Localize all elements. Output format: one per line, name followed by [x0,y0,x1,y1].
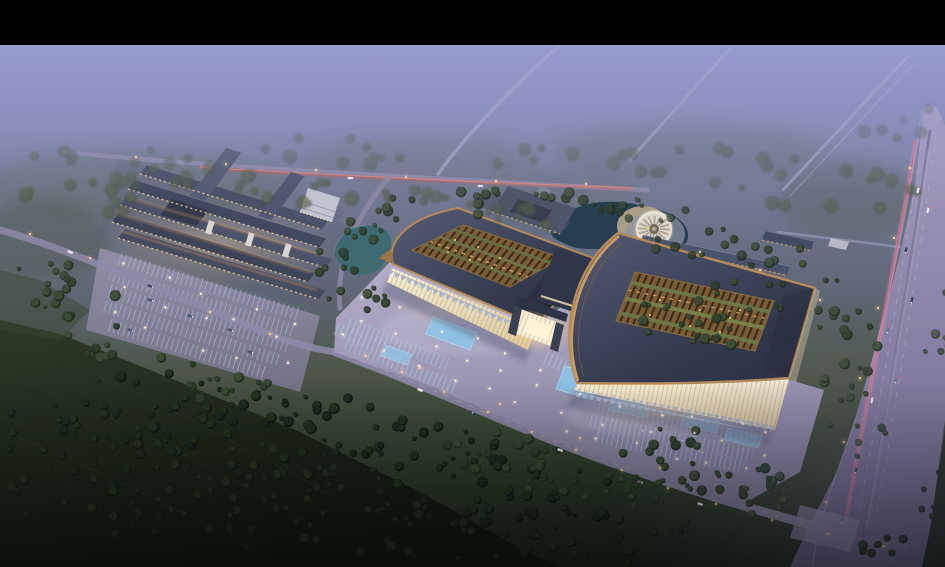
rendering-canvas [0,0,945,567]
aerial-rendering [0,0,945,567]
letterbox-top [0,0,945,45]
bottom-vignette [0,380,945,567]
top-fog [0,45,945,195]
